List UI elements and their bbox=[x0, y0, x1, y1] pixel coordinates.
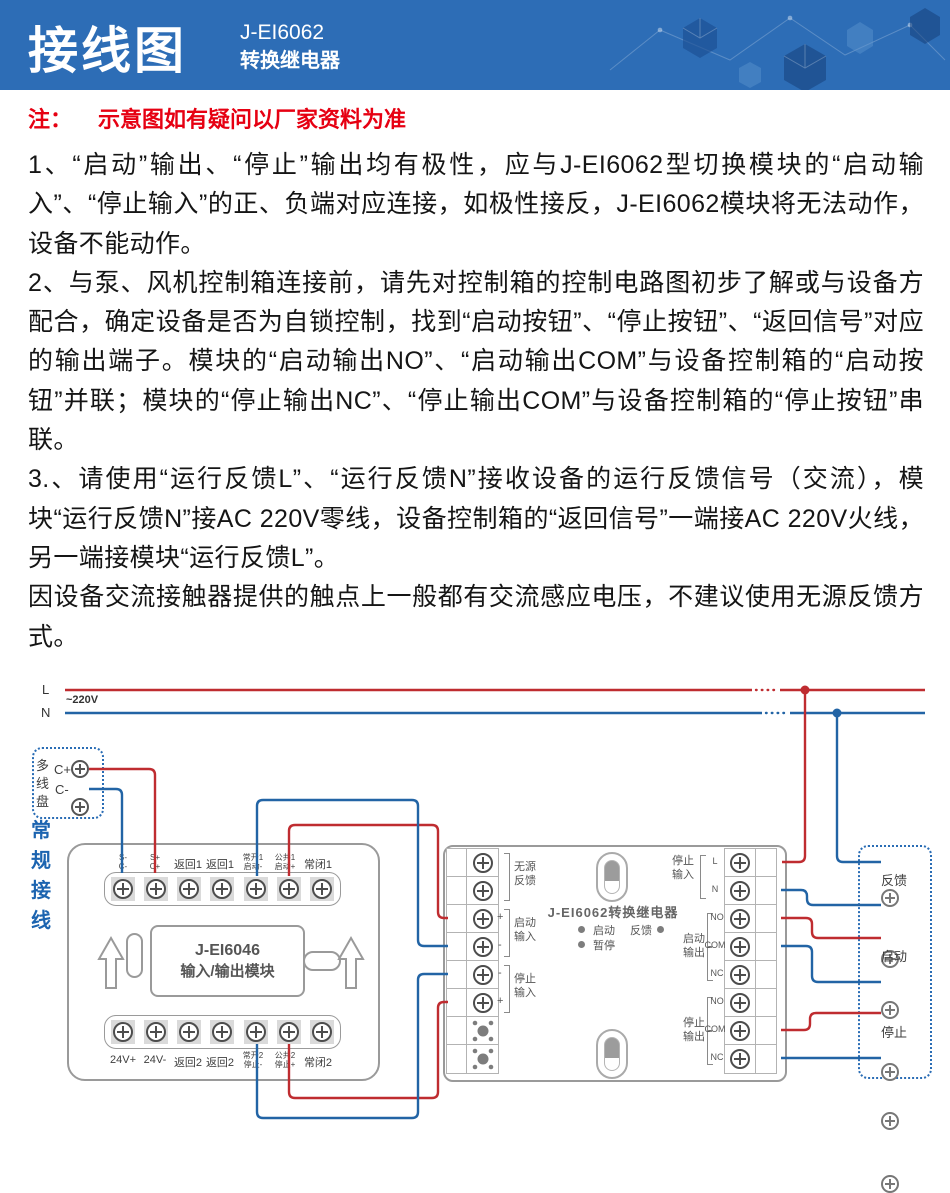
io-bottom-terminal-label-3: 返回2 bbox=[174, 1054, 202, 1070]
relay-stop-NO-label: NO bbox=[710, 996, 724, 1006]
relay-left-row-1 bbox=[447, 849, 498, 877]
relay-left-screw-6 bbox=[473, 993, 493, 1013]
panel-terminal-cplus-label: C+ bbox=[54, 762, 71, 777]
panel-terminal-cplus-screw bbox=[71, 760, 89, 778]
io-bottom-terminal-label-2: 24V- bbox=[144, 1054, 167, 1066]
relay-stop-input-label: 停止 输入 bbox=[514, 972, 536, 1000]
relay-top-mount-hole bbox=[596, 852, 628, 902]
relay-left-row-8 bbox=[447, 1045, 498, 1073]
model-type: 转换继电器 bbox=[240, 47, 340, 75]
relay-right-row-3 bbox=[725, 905, 776, 933]
relay-start-NO-label: NO bbox=[710, 912, 724, 922]
io-bottom-screw-3 bbox=[177, 1020, 201, 1044]
relay-right-screw-2 bbox=[730, 881, 750, 901]
io-top-screw-1 bbox=[111, 877, 135, 901]
relay-right-screw-3 bbox=[730, 909, 750, 929]
instruction-paragraph-4: 因设备交流接触器提供的触点上一般都有交流感应电压，不建议使用无源反馈方式。 bbox=[28, 578, 924, 657]
instruction-paragraph-2: 2、与泵、风机控制箱连接前，请先对控制箱的控制电路图初步了解或与设备方配合，确定… bbox=[28, 264, 924, 460]
wire-live-to-relay-L bbox=[782, 690, 805, 862]
relay-left-terminal-grid bbox=[446, 848, 499, 1074]
io-top-terminal-label-4: 返回1 bbox=[206, 856, 234, 872]
relay-stop-output-label: 停止 输出 bbox=[683, 1016, 705, 1044]
io-bottom-terminal-label-5: 常开2 停止- bbox=[243, 1052, 263, 1069]
relay-passive-feedback-label: 无源 反馈 bbox=[514, 860, 536, 888]
voltage-label: ~220V bbox=[66, 694, 98, 706]
io-bottom-screw-6 bbox=[277, 1020, 301, 1044]
relay-right-screw-1 bbox=[730, 853, 750, 873]
device-start-label: 启动 bbox=[881, 946, 907, 965]
relay-stop-input-bracket bbox=[504, 965, 510, 1013]
start-led bbox=[578, 926, 585, 933]
device-start-screw-1 bbox=[881, 1001, 899, 1019]
io-top-terminal-label-1: S- C- bbox=[119, 854, 127, 871]
live-junction-dot bbox=[801, 686, 810, 695]
instruction-text: 1、“启动”输出、“停止”输出均有极性，应与J-EI6062型切换模块的“启动输… bbox=[28, 146, 924, 657]
io-bottom-screw-7 bbox=[310, 1020, 334, 1044]
io-bottom-screw-4 bbox=[210, 1020, 234, 1044]
feedback-led-label: 反馈 bbox=[630, 922, 652, 938]
model-number: J-EI6062 bbox=[240, 19, 340, 47]
device-feedback-label: 反馈 bbox=[881, 870, 907, 889]
relay-ac-input-label: 停止 输入 bbox=[672, 854, 694, 882]
relay-right-terminal-grid bbox=[724, 848, 777, 1074]
instruction-paragraph-3: 3.、请使用“运行反馈L”、“运行反馈N”接收设备的运行反馈信号（交流），模块“… bbox=[28, 460, 924, 578]
relay-ac-input-bracket bbox=[700, 855, 706, 899]
io-left-slot bbox=[126, 933, 143, 978]
relay-left-screw-3 bbox=[473, 909, 493, 929]
relay-right-row-7 bbox=[725, 1017, 776, 1045]
relay-right-screw-6 bbox=[730, 993, 750, 1013]
note-text: 示意图如有疑问以厂家资料为准 bbox=[98, 107, 406, 132]
start-led-label: 启动 bbox=[593, 922, 615, 938]
relay-terminal-L-label: L bbox=[712, 856, 717, 866]
relay-left-screw-1 bbox=[473, 853, 493, 873]
header-decoration-cubes bbox=[590, 0, 950, 90]
io-bottom-terminal-label-1: 24V+ bbox=[110, 1054, 136, 1066]
device-start-screw-2 bbox=[881, 1063, 899, 1081]
io-bottom-terminal-label-4: 返回2 bbox=[206, 1054, 234, 1070]
device-stop-label: 停止 bbox=[881, 1022, 907, 1041]
neutral-junction-dot bbox=[833, 709, 842, 718]
relay-passive-feedback-bracket bbox=[504, 853, 510, 901]
relay-left-row-6 bbox=[447, 989, 498, 1017]
io-top-screw-7 bbox=[310, 877, 334, 901]
multi-wire-panel-label: 多 线 盘 bbox=[36, 757, 49, 811]
relay-right-row-4 bbox=[725, 933, 776, 961]
manual-page: { "header": { "title": "接线图", "model": "… bbox=[0, 0, 950, 1147]
model-subtitle: J-EI6062 转换继电器 bbox=[240, 19, 340, 75]
relay-right-row-8 bbox=[725, 1045, 776, 1073]
io-bottom-screw-2 bbox=[144, 1020, 168, 1044]
relay-left-screw-4 bbox=[473, 937, 493, 957]
relay-left-screw-2 bbox=[473, 881, 493, 901]
relay-start-input-minus-mark: - bbox=[498, 939, 502, 951]
relay-stop-input-minus-mark: - bbox=[498, 967, 502, 979]
conventional-wiring-label: 常 规 接 线 bbox=[31, 816, 51, 936]
relay-left-row-4 bbox=[447, 933, 498, 961]
relay-left-row-2 bbox=[447, 877, 498, 905]
io-top-terminal-label-7: 常闭1 bbox=[304, 856, 332, 872]
relay-left-screw-5 bbox=[473, 965, 493, 985]
io-top-screw-3 bbox=[177, 877, 201, 901]
device-stop-screw-2 bbox=[881, 1175, 899, 1193]
io-top-terminal-label-3: 返回1 bbox=[174, 856, 202, 872]
io-bottom-screw-1 bbox=[111, 1020, 135, 1044]
pause-led bbox=[578, 941, 585, 948]
io-bottom-terminal-label-7: 常闭2 bbox=[304, 1054, 332, 1070]
relay-start-input-label: 启动 输入 bbox=[514, 916, 536, 944]
io-bottom-terminal-strip bbox=[104, 1015, 341, 1049]
wire-neutral-to-device-feedback bbox=[837, 713, 881, 862]
feedback-led bbox=[657, 926, 664, 933]
page-title: 接线图 bbox=[28, 11, 187, 83]
panel-terminal-cminus-label: C- bbox=[55, 782, 69, 797]
relay-module-title: J-EI6062转换继电器 bbox=[548, 902, 679, 921]
relay-right-screw-8 bbox=[730, 1049, 750, 1069]
note-prefix: 注： bbox=[28, 107, 72, 132]
device-feedback-screw-1 bbox=[881, 889, 899, 907]
relay-left-row-5 bbox=[447, 961, 498, 989]
page-header: 接线图 J-EI6062 转换继电器 bbox=[0, 0, 950, 90]
live-line-label: L bbox=[42, 682, 49, 697]
relay-stop-NC-label: NC bbox=[711, 1052, 724, 1062]
relay-start-output-label: 启动 输出 bbox=[683, 932, 705, 960]
io-right-slot bbox=[303, 951, 341, 971]
relay-start-input-plus-mark: + bbox=[497, 911, 503, 923]
disclaimer-note: 注：示意图如有疑问以厂家资料为准 bbox=[28, 102, 406, 134]
relay-start-NC-label: NC bbox=[711, 968, 724, 978]
instruction-paragraph-1: 1、“启动”输出、“停止”输出均有极性，应与J-EI6062型切换模块的“启动输… bbox=[28, 146, 924, 264]
io-top-terminal-label-2: S+ C+ bbox=[150, 854, 160, 871]
relay-left-row-3 bbox=[447, 905, 498, 933]
io-top-terminal-strip bbox=[104, 872, 341, 906]
io-top-screw-4 bbox=[210, 877, 234, 901]
relay-address-button-1 bbox=[471, 1019, 495, 1043]
io-top-terminal-label-5: 常开1 启动- bbox=[243, 854, 263, 871]
relay-terminal-N-label: N bbox=[712, 884, 719, 894]
relay-right-row-1 bbox=[725, 849, 776, 877]
relay-left-row-7 bbox=[447, 1017, 498, 1045]
relay-right-screw-5 bbox=[730, 965, 750, 985]
relay-bottom-mount-hole bbox=[596, 1029, 628, 1079]
relay-right-row-2 bbox=[725, 877, 776, 905]
device-stop-screw-1 bbox=[881, 1112, 899, 1130]
io-module-nameplate: J-EI6046 输入/输出模块 bbox=[150, 925, 305, 997]
relay-right-row-5 bbox=[725, 961, 776, 989]
relay-right-row-6 bbox=[725, 989, 776, 1017]
io-top-screw-2 bbox=[144, 877, 168, 901]
relay-stop-COM-label: COM bbox=[705, 1024, 726, 1034]
relay-start-COM-label: COM bbox=[705, 940, 726, 950]
neutral-line-label: N bbox=[41, 705, 50, 720]
io-bottom-screw-5 bbox=[244, 1020, 268, 1044]
relay-address-button-2 bbox=[471, 1047, 495, 1071]
panel-terminal-cminus-screw bbox=[71, 798, 89, 816]
wiring-diagram: L N ~220V 多 线 盘 C+ C- 常 规 接 线 S- C- S+ C… bbox=[0, 667, 950, 1147]
io-bottom-terminal-label-6: 公共2 停止+ bbox=[275, 1052, 296, 1069]
relay-stop-input-plus-mark: + bbox=[497, 995, 503, 1007]
io-top-terminal-label-6: 公共1 启动+ bbox=[275, 854, 296, 871]
io-top-screw-5 bbox=[244, 877, 268, 901]
relay-right-screw-7 bbox=[730, 1021, 750, 1041]
io-top-screw-6 bbox=[277, 877, 301, 901]
relay-right-screw-4 bbox=[730, 937, 750, 957]
pause-led-label: 暂停 bbox=[593, 937, 615, 953]
relay-start-input-bracket bbox=[504, 909, 510, 957]
